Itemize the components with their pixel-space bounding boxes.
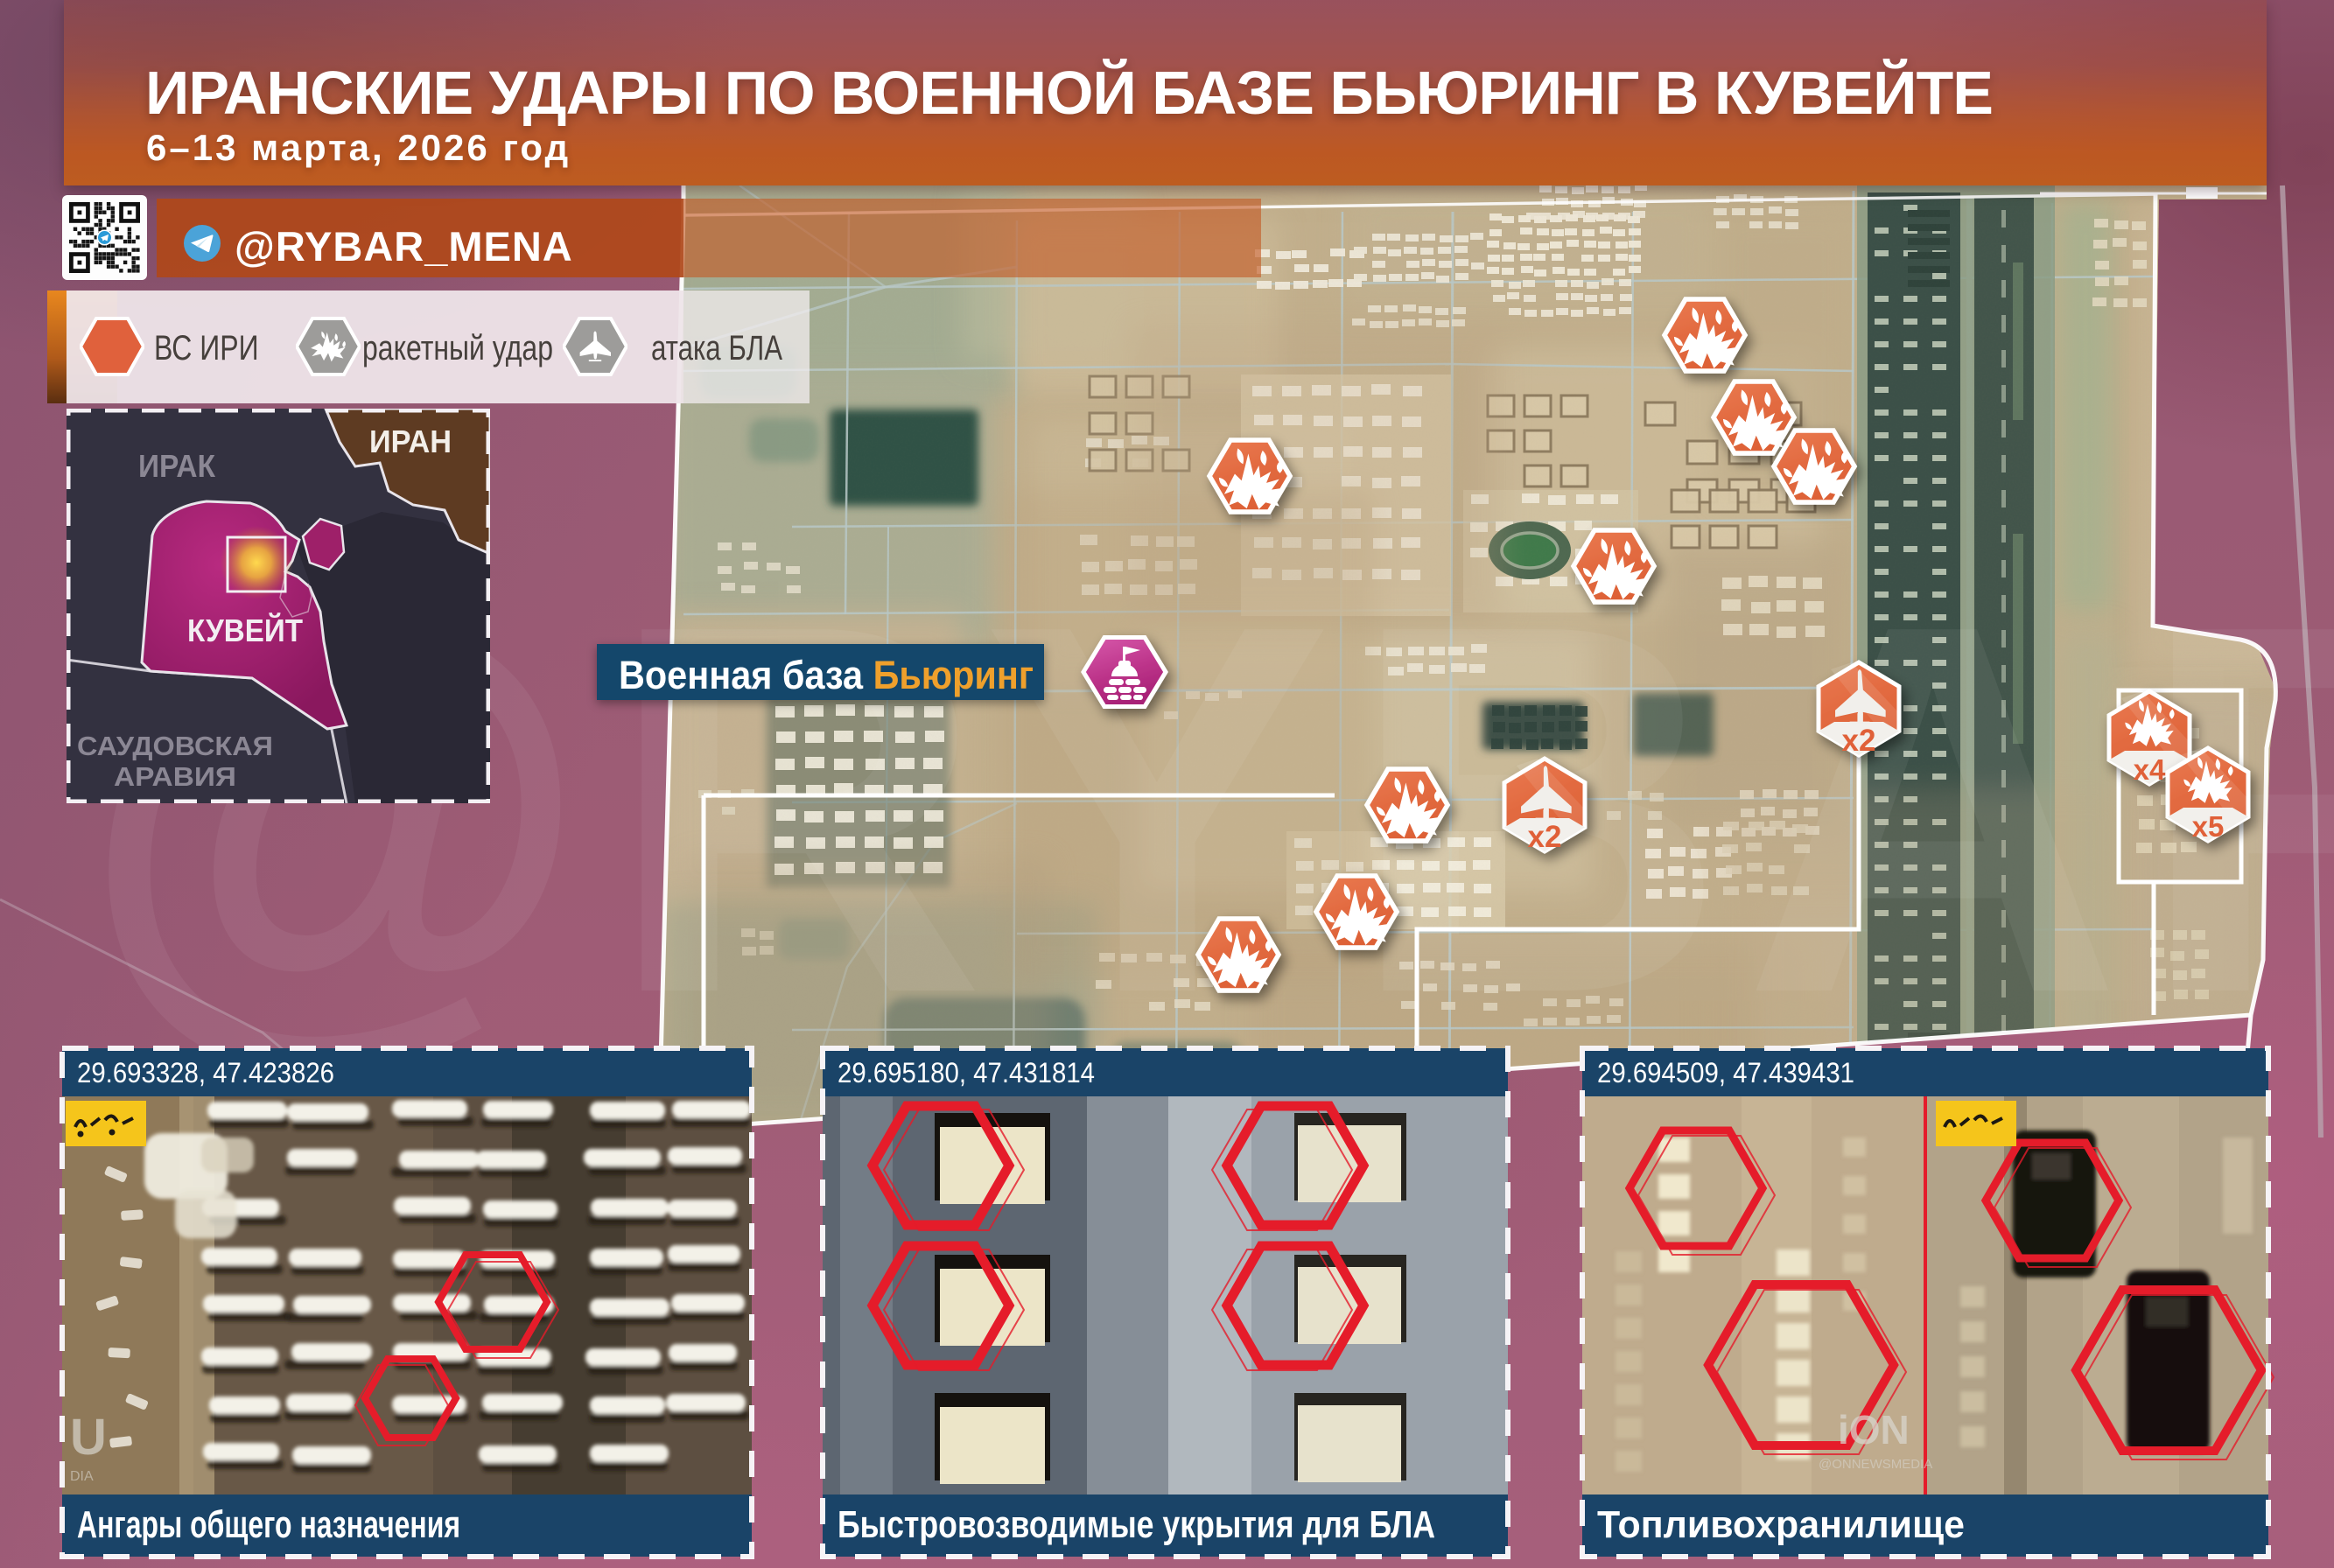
svg-text:U: U	[70, 1409, 107, 1466]
svg-text:Ангары общего назначения: Ангары общего назначения	[77, 1503, 460, 1546]
svg-text:DIA: DIA	[70, 1469, 94, 1484]
svg-text:29.694509, 47.439431: 29.694509, 47.439431	[1597, 1057, 1854, 1088]
svg-text:Топливохранилище: Топливохранилище	[1597, 1503, 1965, 1546]
svg-text:iON: iON	[1838, 1407, 1910, 1452]
svg-text:Быстровозводимые укрытия для Б: Быстровозводимые укрытия для БЛА	[838, 1503, 1435, 1546]
svg-text:@ONNEWSMEDIA: @ONNEWSMEDIA	[1819, 1457, 1932, 1472]
svg-text:29.693328, 47.423826: 29.693328, 47.423826	[77, 1057, 334, 1088]
svg-text:29.695180, 47.431814: 29.695180, 47.431814	[838, 1057, 1095, 1088]
